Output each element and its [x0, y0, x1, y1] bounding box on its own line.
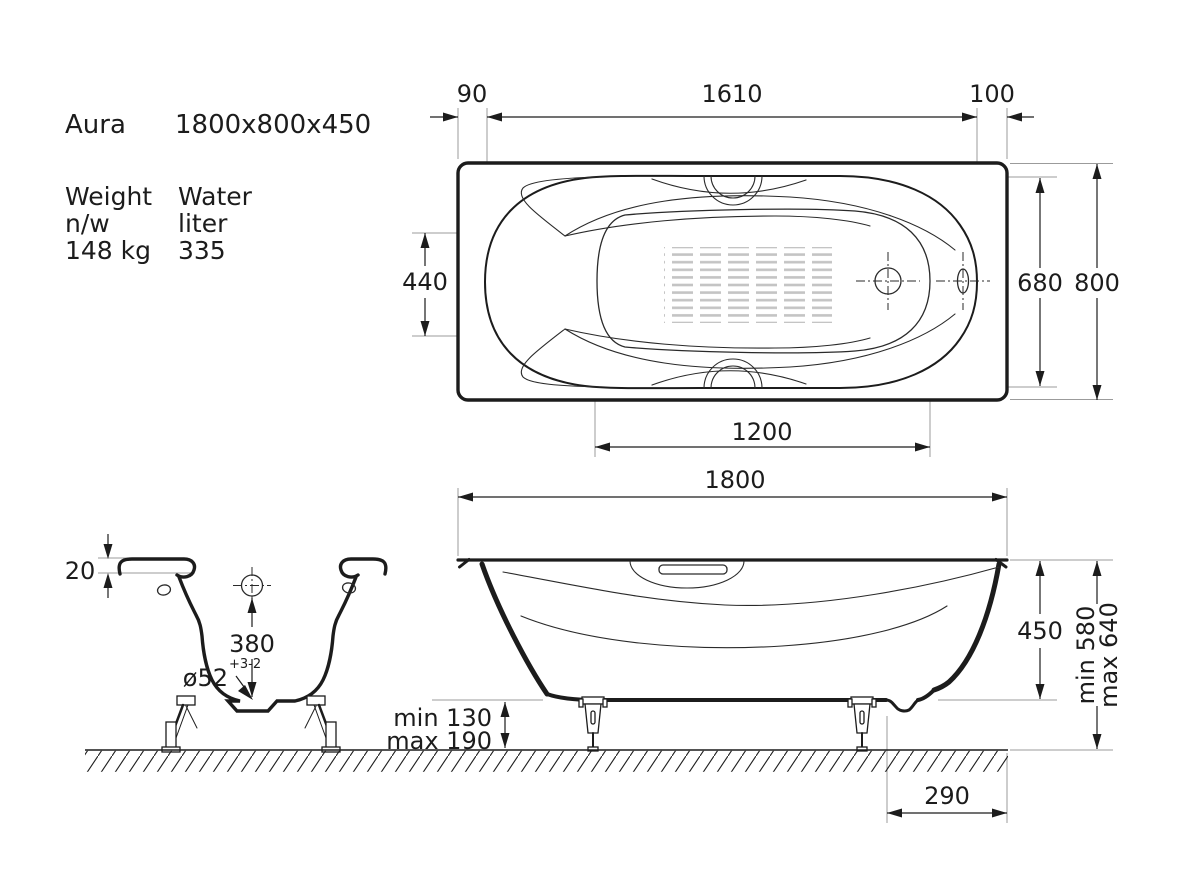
side-foot-right	[848, 697, 876, 751]
side-dim-install-max: max 640	[1095, 602, 1123, 708]
plan-dim-inner-width: 680	[1017, 269, 1063, 297]
plan-dim-bottom-length: 1200	[731, 418, 792, 446]
section-view: 20	[65, 534, 386, 752]
ground-hatch	[85, 751, 1008, 772]
plan-dim-head-width: 440	[402, 268, 448, 296]
ground	[85, 750, 1008, 772]
side-left-wall	[482, 564, 547, 694]
plan-view: 90 1610 100 440 680 800 1200	[402, 80, 1120, 457]
section-drain-tolerance: +3-2	[229, 657, 261, 672]
side-foot-left	[579, 697, 607, 751]
water-label: Water	[178, 182, 253, 211]
side-overflow-slot	[659, 565, 727, 574]
product-name: Aura	[65, 110, 126, 140]
side-tub-drawing	[458, 560, 1007, 752]
section-rim-dim	[98, 534, 192, 598]
drawing-canvas: Aura 1800x800x450 Weight n/w 148 kg Wate…	[0, 0, 1200, 876]
water-value: 335	[178, 236, 226, 265]
weight-value: 148 kg	[65, 236, 151, 265]
plan-dim-outer-width: 800	[1074, 269, 1120, 297]
side-right-wall	[934, 564, 999, 690]
weight-label: Weight	[65, 182, 152, 211]
section-leg-right	[305, 696, 340, 752]
section-dim-drain-height: 380	[229, 630, 275, 658]
plan-dim-offset-left: 90	[457, 80, 488, 108]
section-drain-diameter: ø52	[183, 664, 228, 692]
plan-dim-offset-right: 100	[969, 80, 1015, 108]
product-size: 1800x800x450	[175, 110, 371, 140]
technical-drawing-sheet: Aura 1800x800x450 Weight n/w 148 kg Wate…	[0, 0, 1200, 876]
side-contour-upper	[503, 567, 999, 605]
section-dim-rim-thickness: 20	[65, 557, 96, 585]
anti-slip-pattern	[664, 247, 832, 323]
plan-tub-drawing	[458, 163, 1007, 400]
spec-block: Aura 1800x800x450 Weight n/w 148 kg Wate…	[65, 110, 371, 265]
side-dim-drain-offset: 290	[924, 782, 970, 810]
side-extension-lines	[432, 488, 1113, 823]
side-dim-length: 1800	[704, 466, 765, 494]
section-handle-hole-left	[157, 584, 172, 596]
water-unit: liter	[178, 209, 228, 238]
side-contour-lower	[521, 606, 947, 648]
section-leg-left	[162, 696, 197, 752]
side-dim-height: 450	[1017, 617, 1063, 645]
plan-dim-rim-length: 1610	[701, 80, 762, 108]
section-left-rim	[119, 559, 194, 577]
section-right-rim	[340, 559, 385, 577]
side-drain-notch	[886, 700, 918, 711]
weight-unit: n/w	[65, 209, 110, 238]
